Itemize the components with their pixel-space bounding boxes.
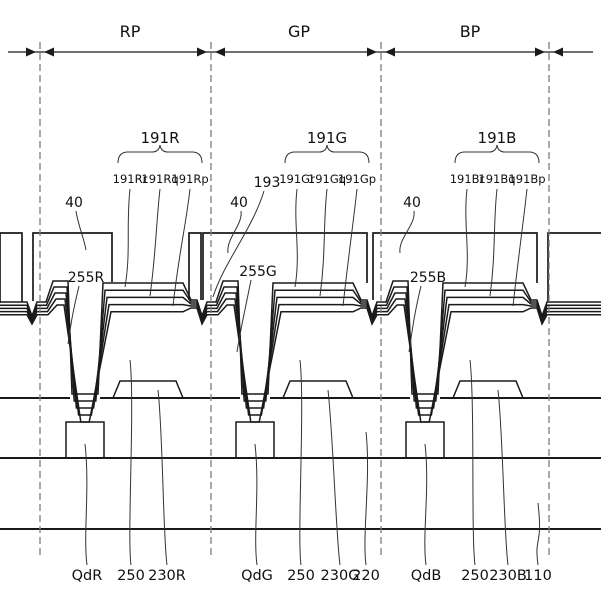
leader-line	[425, 444, 427, 565]
spacer-label-255: 255R	[68, 270, 105, 286]
layer-label: 230R	[148, 568, 186, 584]
dimension-arrow-left	[26, 48, 36, 57]
dimension-arrow-right	[215, 48, 225, 57]
qd-contact-pad	[406, 422, 444, 458]
leader-line	[328, 390, 340, 565]
leader-line	[490, 189, 497, 296]
dimension-arrow-right	[385, 48, 395, 57]
dimension-arrow-left	[367, 48, 377, 57]
leader-line	[173, 189, 190, 306]
dimension-arrow-right	[553, 48, 563, 57]
cross-section-svg: RPGPBP191R191Rr191Rq191Rp191G191Gr191Gq1…	[0, 0, 601, 601]
layer-label: QdR	[72, 568, 103, 584]
electrode-group-label: 191R	[140, 129, 179, 147]
layer-label: 110	[524, 568, 552, 584]
leader-line	[158, 390, 167, 565]
leader-line	[498, 390, 508, 565]
leader-line	[400, 211, 414, 253]
stack-layer-line	[0, 293, 601, 408]
bank-label-40: 40	[65, 195, 83, 211]
bank-partial-right	[548, 233, 601, 302]
electrode-sublayer-label: 191Bp	[508, 172, 545, 186]
electrode-sublayer-label: 191Rp	[171, 172, 208, 186]
pixel-region-label: GP	[288, 22, 310, 41]
leader-line	[85, 444, 87, 565]
brace	[455, 145, 539, 163]
dimension-arrow-left	[197, 48, 207, 57]
dimension-arrow-left	[535, 48, 545, 57]
electrode-sublayer-label: 191Gp	[338, 172, 376, 186]
leader-line	[537, 503, 540, 565]
layer-label: 220	[352, 568, 380, 584]
layer-label: 250	[117, 568, 145, 584]
leader-line	[76, 211, 86, 250]
leader-line	[465, 189, 467, 287]
layer-label: 250	[287, 568, 315, 584]
leader-line	[150, 189, 160, 296]
layer-label: QdB	[411, 568, 442, 584]
leader-line	[365, 432, 368, 565]
active-trapezoid-230	[283, 381, 353, 398]
qd-contact-pad	[66, 422, 104, 458]
qd-contact-pad	[236, 422, 274, 458]
leader-line	[320, 189, 327, 296]
leader-line	[255, 444, 257, 565]
brace	[118, 145, 202, 163]
bank-label-40: 40	[403, 195, 421, 211]
leader-line	[295, 189, 297, 287]
leader-line	[409, 286, 421, 352]
bank-label-40: 40	[230, 195, 248, 211]
layer-193-label: 193	[254, 175, 281, 191]
electrode-group-label: 191G	[307, 129, 347, 147]
layer-label: QdG	[241, 568, 273, 584]
leader-line	[470, 360, 475, 565]
layer-label: 250	[461, 568, 489, 584]
bank-narrow-rp	[189, 233, 201, 300]
leader-line	[228, 211, 241, 253]
dimension-arrow-right	[44, 48, 54, 57]
leader-line	[130, 360, 132, 565]
pixel-region-label: RP	[120, 22, 141, 41]
electrode-group-label: 191B	[478, 129, 517, 147]
pixel-region-label: BP	[460, 22, 481, 41]
active-trapezoid-230	[113, 381, 183, 398]
brace	[285, 145, 369, 163]
bank-partial-left	[0, 233, 22, 303]
spacer-label-255: 255B	[410, 270, 446, 286]
leader-line	[125, 189, 130, 287]
bank-40-rp	[33, 233, 112, 301]
active-trapezoid-230	[453, 381, 523, 398]
layer-label: 230B	[489, 568, 527, 584]
leader-line	[300, 360, 302, 565]
spacer-label-255: 255G	[239, 264, 277, 280]
patent-figure: RPGPBP191R191Rr191Rq191Rp191G191Gr191Gq1…	[0, 0, 601, 601]
